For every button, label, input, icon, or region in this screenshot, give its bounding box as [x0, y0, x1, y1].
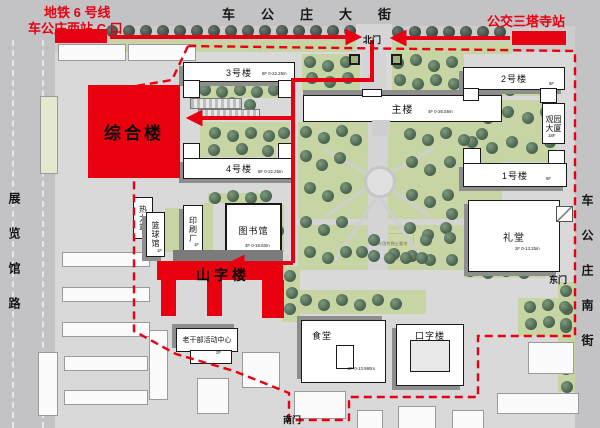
campus-map: 3号楼 6F 0-22.25m 4号楼 6F 0-22.25m 主楼 4F 0-… [0, 0, 600, 428]
metro-exit-label: 车公庄西站 C 口 [28, 18, 123, 37]
building-no1-floors: 6F [546, 177, 551, 181]
building-main-floors: 4F 0-26.55m [428, 110, 453, 114]
building-auditorium-floors: 2F 0-13.25m [515, 247, 540, 251]
building-guanyuan-floors: 18F [548, 134, 555, 138]
building-cadre-center-floors: 2F [216, 351, 221, 355]
bus-station-marker [512, 31, 566, 45]
building-no2-floors: 6F [549, 82, 554, 86]
east-gate-label: 东门 [549, 273, 567, 286]
street-name-east: 车公庄南街 [579, 194, 596, 369]
building-no4-floors: 6F 0-22.25m [258, 170, 283, 174]
campus-boundary-dashed [93, 46, 575, 420]
building-basketball-floors: 1F [157, 249, 162, 253]
south-gate-label: 南门 [283, 413, 301, 426]
route-main [293, 40, 372, 263]
building-library-floors: 4F 0-19.50m [245, 244, 270, 248]
bus-station-label: 公交三塔寺站 [487, 11, 565, 30]
building-canteen-floors: 2F 0-13.990m [348, 367, 375, 371]
building-shanzi-label: 山字楼 [196, 265, 250, 285]
street-name-west: 展览馆路 [6, 192, 23, 332]
cemetery-label: 外国传教士墓地 [378, 241, 407, 247]
building-no3-floors: 6F 0-22.25m [262, 72, 287, 76]
north-gate-label: 北门 [363, 33, 381, 46]
building-printing-floors: 1F [194, 243, 199, 247]
route-overlay [0, 0, 600, 428]
street-name-north: 车公庄大街 [222, 4, 417, 23]
